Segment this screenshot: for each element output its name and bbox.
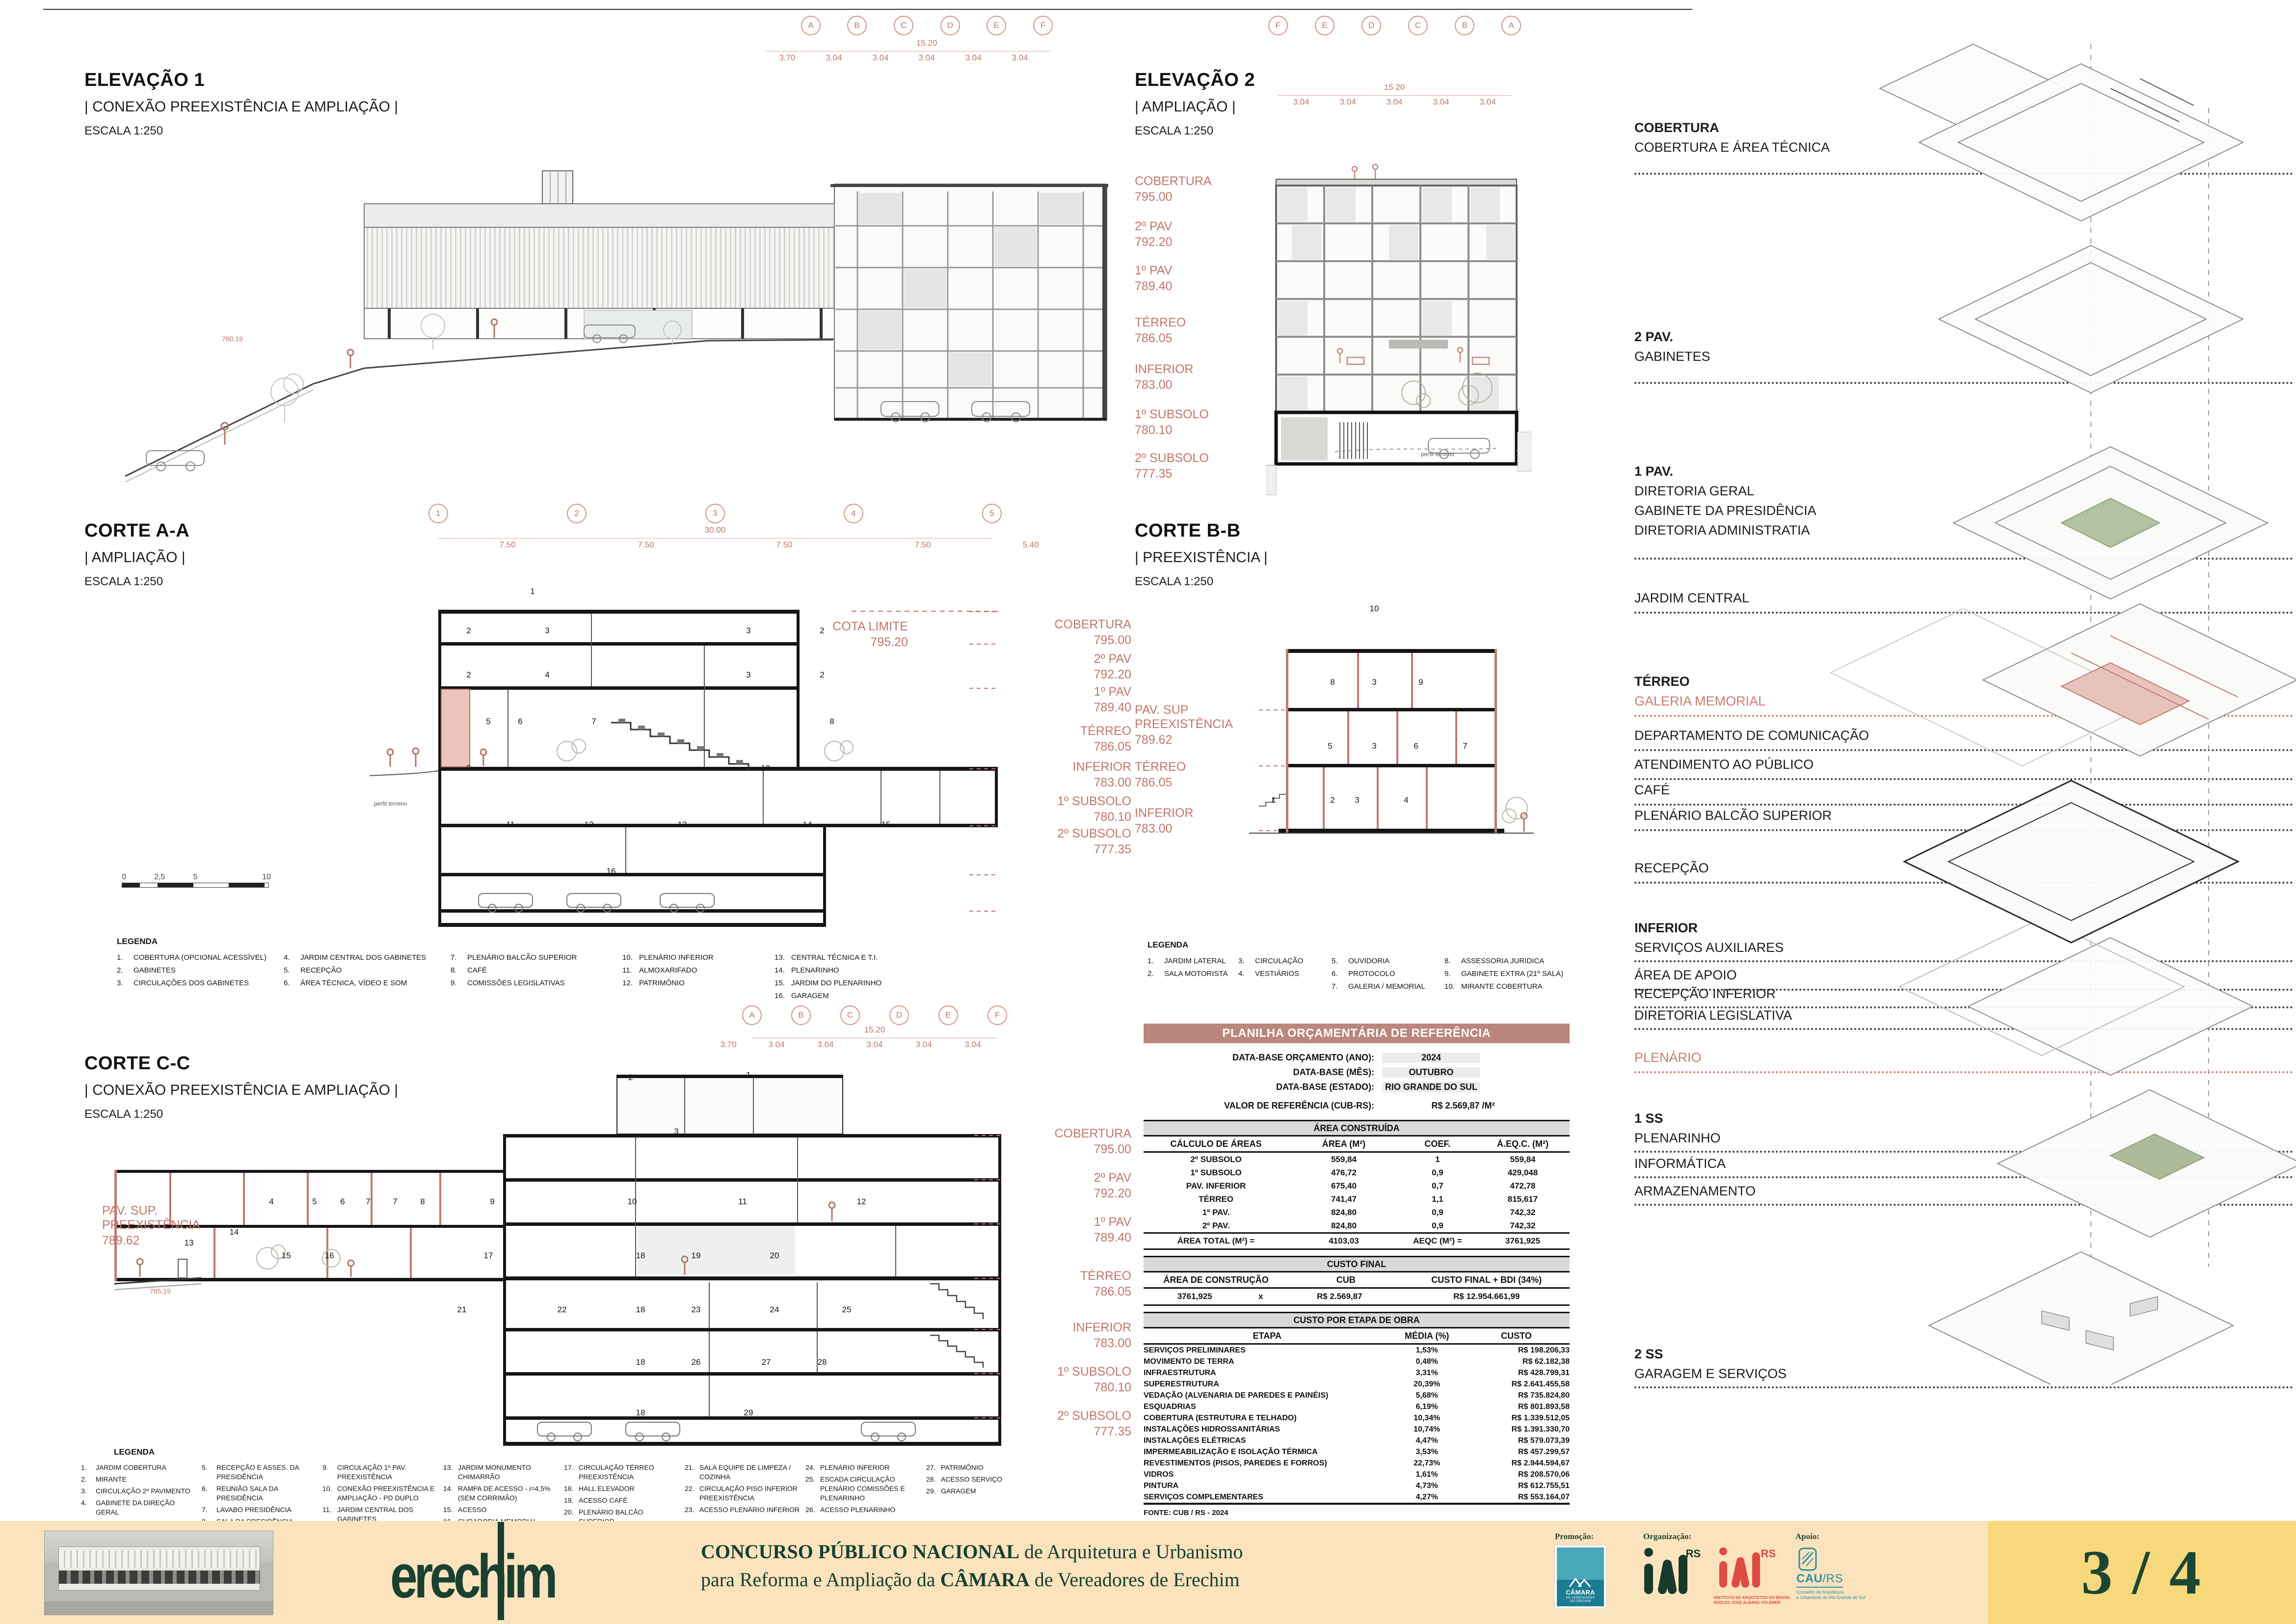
axon-label-plenario-balcao: PLENÁRIO BALCÃO SUPERIOR xyxy=(1634,806,2293,825)
grid-bubble: 2 xyxy=(567,504,587,523)
grid-bubble: D xyxy=(940,16,960,35)
level-label: INFERIOR783.00 xyxy=(1009,1321,1131,1351)
axon-label-2pav: 2 PAV.GABINETES xyxy=(1634,327,2293,366)
grid-bubble: D xyxy=(889,1005,909,1025)
dim: 3.04 xyxy=(1012,53,1028,63)
grid-bubble: E xyxy=(938,1005,958,1025)
dim: 5.40 xyxy=(1022,540,1039,550)
legend-item: 28.ACESSO SERVIÇO xyxy=(926,1475,1047,1484)
room-tag: 2 xyxy=(466,670,471,680)
room-tag: 18 xyxy=(636,1357,645,1367)
dim: 3.04 xyxy=(866,1040,882,1050)
room-tag: 25 xyxy=(842,1305,852,1315)
source-note: FONTE: CUB / RS - 2024 xyxy=(1144,1509,1570,1517)
legend-item: 3.CIRCULAÇÃO 2º PAVIMENTO xyxy=(81,1487,202,1496)
grid-bubble: C xyxy=(894,16,913,35)
area-headers: CÁLCULO DE ÁREASÁREA (M²)COEF.Á.EQ.C. (M… xyxy=(1144,1137,1570,1153)
info-row: DATA-BASE (MÊS):OUTUBRO xyxy=(1144,1065,1570,1080)
legend-item: 2.GABINETES xyxy=(117,965,284,975)
level-label: 2º SUBSOLO777.35 xyxy=(1009,827,1131,857)
grid-bubble: B xyxy=(791,1005,811,1025)
level-label: TÉRREO786.05 xyxy=(1135,316,1186,346)
room-tag: 13 xyxy=(678,820,687,830)
legend-item: 5.RECEPÇÃO xyxy=(284,965,451,975)
axon-label-armazenamento: ARMAZENAMENTO xyxy=(1634,1181,2293,1201)
legend-item: 1.JARDIM LATERAL xyxy=(1148,956,1238,966)
grid-bubble: F xyxy=(1268,16,1288,35)
room-tag: 4 xyxy=(269,1197,273,1207)
axon-label-jardim-central: JARDIM CENTRAL xyxy=(1634,588,2293,608)
room-tag: 22 xyxy=(558,1305,567,1315)
grid-bubble: C xyxy=(840,1005,860,1025)
legend-item: 8.CAFÉ xyxy=(451,965,622,975)
legend-item: 25.ESCADA CIRCULAÇÃO PLENÁRIO COMISSÕES … xyxy=(805,1475,926,1503)
elevation-1-titleblock: ELEVAÇÃO 1 | CONEXÃO PREEXISTÊNCIA E AMP… xyxy=(84,70,398,138)
room-tag: 18 xyxy=(636,1251,645,1261)
legend-item: 18.HALL ELEVADOR xyxy=(564,1484,685,1493)
level-label: 1º SUBSOLO780.10 xyxy=(1009,1365,1131,1395)
area-row: 2º SUBSOLO559,841559,84 xyxy=(1144,1153,1570,1166)
legend-item: 7.PLENÁRIO BALCÃO SUPERIOR xyxy=(451,952,622,963)
room-tag: 4 xyxy=(1404,795,1408,805)
stage-row: PINTURA4,73%R$ 612.755,51 xyxy=(1144,1480,1570,1491)
section-bb-drawing xyxy=(1249,594,1534,879)
section-bb-title: CORTE B-B xyxy=(1135,520,1268,541)
level-label: 2º PAV792.20 xyxy=(1009,1171,1131,1201)
axon-label-inferior: INFERIORSERVIÇOS AUXILIARES xyxy=(1634,918,2293,957)
stage-row: SERVIÇOS PRELIMINARES1,53%R$ 198.206,33 xyxy=(1144,1345,1570,1356)
room-tag: 8 xyxy=(829,717,834,727)
room-tag: 16 xyxy=(325,1251,334,1261)
legend-item: 10.MIRANTE COBERTURA xyxy=(1444,981,1572,992)
elevation-1-title: ELEVAÇÃO 1 xyxy=(84,70,398,91)
legend-item: 10.CONEXÃO PREEXISTÊNCIA E AMPLIAÇÃO - P… xyxy=(322,1484,443,1503)
dim: 3.70 xyxy=(779,53,795,63)
level-label: 1º PAV789.40 xyxy=(1135,264,1172,294)
apoio-label: Apoio: xyxy=(1795,1532,1819,1542)
room-tag: 3 xyxy=(746,626,750,636)
dim: 3.04 xyxy=(964,1040,981,1050)
dim: 7.50 xyxy=(638,540,654,550)
axon-label-diretoria-legislativa: DIRETORIA LEGISLATIVA xyxy=(1634,1005,2293,1025)
footer-band: erechim CONCURSO PÚBLICO NACIONAL de Arq… xyxy=(0,1521,2296,1624)
stage-row: SERVIÇOS COMPLEMENTARES4,27%R$ 553.164,0… xyxy=(1144,1491,1570,1503)
level-label: 2º SUBSOLO777.35 xyxy=(1009,1409,1131,1439)
room-tag: 23 xyxy=(692,1305,701,1315)
room-tag: 28 xyxy=(818,1357,827,1367)
grid-bubble: E xyxy=(1315,16,1335,35)
stage-row: INSTALAÇÕES ELÉTRICAS4,47%R$ 579.073,39 xyxy=(1144,1435,1570,1446)
competition-board-sheet: ELEVAÇÃO 1 | CONEXÃO PREEXISTÊNCIA E AMP… xyxy=(0,0,2296,1624)
legend-item: 13.CENTRAL TÉCNICA E T.I. xyxy=(774,952,951,963)
legend-item: 4.VESTIÁRIOS xyxy=(1238,969,1332,979)
elevation-1-subtitle: | CONEXÃO PREEXISTÊNCIA E AMPLIAÇÃO | xyxy=(84,99,398,115)
room-tag: 17 xyxy=(484,1251,493,1261)
room-tag: 7 xyxy=(591,717,596,727)
dim-total: 15.20 xyxy=(864,1025,885,1035)
graphic-scale-bar: 0 2,5 5 10 xyxy=(122,873,269,888)
erechim-logo: erechim xyxy=(390,1542,555,1612)
stage-row: MOVIMENTO DE TERRA0,48%R$ 62.182,38 xyxy=(1144,1356,1570,1367)
dim: 3.04 xyxy=(1479,97,1495,107)
legend-item: 22.CIRCULAÇÃO PISO INFERIOR PREEXISTÊNCI… xyxy=(685,1484,805,1503)
level-label: TÉRREO786.05 xyxy=(1009,724,1131,754)
final-cost-title: CUSTO FINAL xyxy=(1144,1256,1570,1272)
grid-bubble: 1 xyxy=(428,504,448,523)
legend-item: 24.PLENÁRIO INFERIOR xyxy=(805,1463,926,1472)
elevation-2-subtitle: | AMPLIAÇÃO | xyxy=(1135,99,1255,115)
dim: 7.50 xyxy=(776,540,792,550)
level-label: INFERIOR783.00 xyxy=(1135,362,1193,392)
axon-label-2ss: 2 SSGARAGEM E SERVIÇOS xyxy=(1634,1344,2293,1383)
legend-item: 23.ACESSO PLENÁRIO INFERIOR xyxy=(685,1505,805,1515)
legend-item: 14.PLENARINHO xyxy=(774,965,951,975)
room-tag: 4 xyxy=(545,670,549,680)
final-cost-headers: ÁREA DE CONSTRUÇÃOCUBCUSTO FINAL + BDI (… xyxy=(1144,1272,1570,1289)
legend-item: 16.GARAGEM xyxy=(774,991,951,1001)
room-tag: 13 xyxy=(185,1238,194,1248)
terrain-profile-label: perfil terreno xyxy=(1421,451,1454,458)
stage-row: VEDAÇÃO (ALVENARIA DE PAREDES E PAINÉIS)… xyxy=(1144,1390,1570,1401)
stage-row: REVESTIMENTOS (PISOS, PAREDES E FORROS)2… xyxy=(1144,1458,1570,1469)
level-label: COBERTURA795.00 xyxy=(1135,174,1212,204)
room-tag: 14 xyxy=(803,820,812,830)
area-row: 2º PAV.824,800,9742,32 xyxy=(1144,1219,1570,1232)
level-label: COBERTURA795.00 xyxy=(1009,1127,1131,1157)
level-label: 2º PAV792.20 xyxy=(1135,219,1172,249)
room-tag: 3 xyxy=(746,670,750,680)
section-aa-scale: ESCALA 1:250 xyxy=(84,575,189,589)
room-tag: 9 xyxy=(1418,677,1423,687)
stage-row: ESQUADRIAS6,19%R$ 801.893,58 xyxy=(1144,1401,1570,1412)
room-tag: 8 xyxy=(1330,677,1335,687)
room-tag: 3 xyxy=(674,1127,678,1137)
grid-bubble: A xyxy=(742,1005,762,1025)
info-row: DATA-BASE ORÇAMENTO (ANO):2024 xyxy=(1144,1050,1570,1065)
stage-row: INFRAESTRUTURA3,31%R$ 428.799,31 xyxy=(1144,1367,1570,1379)
room-tag: 6 xyxy=(1414,741,1418,751)
legend-item: 6.REUNIÃO SALA DA PRESIDÊNCIA xyxy=(202,1484,322,1503)
stage-cost-headers: ETAPAMÉDIA (%)CUSTO xyxy=(1144,1328,1570,1345)
axon-label-cafe: CAFÉ xyxy=(1634,780,2293,800)
grid-bubble: D xyxy=(1362,16,1381,35)
legend-item: 29.GARAGEM xyxy=(926,1487,1047,1496)
legend-item: 5.OUVIDORIA xyxy=(1332,956,1444,966)
legend-item: 27.PATRIMÔNIO xyxy=(926,1463,1047,1472)
dim: 3.04 xyxy=(1433,97,1449,107)
legend-item: 4.GABINETE DA DIREÇÃO GERAL xyxy=(81,1498,202,1517)
level-label: INFERIOR783.00 xyxy=(1135,806,1193,836)
grid-bubble: F xyxy=(988,1005,1007,1025)
existing-building-photo xyxy=(44,1531,273,1615)
dim: 3.70 xyxy=(720,1040,736,1050)
competition-title: CONCURSO PÚBLICO NACIONAL de Arquitetura… xyxy=(701,1538,1243,1594)
area-row: 1º SUBSOLO476,720,9429,048 xyxy=(1144,1166,1570,1179)
level-label: TÉRREO786.05 xyxy=(1009,1269,1131,1299)
dim-total: 15.20 xyxy=(916,38,937,48)
room-tag: 3 xyxy=(1372,741,1376,751)
elevation-2-titleblock: ELEVAÇÃO 2 | AMPLIAÇÃO | ESCALA 1:250 xyxy=(1135,70,1255,138)
room-tag: 12 xyxy=(857,1197,866,1207)
room-tag: 26 xyxy=(692,1357,701,1367)
room-tag: 18 xyxy=(636,1408,645,1418)
axon-label-terreo: TÉRREOGALERIA MEMORIAL xyxy=(1634,672,2293,711)
level-label: 1º PAV789.40 xyxy=(1009,1215,1131,1245)
legend-item: 21.SALA EQUIPE DE LIMPEZA / COZINHA xyxy=(685,1463,805,1482)
leader-dots xyxy=(1634,1386,2293,1388)
dim: 3.04 xyxy=(817,1040,833,1050)
dim: 3.04 xyxy=(1339,97,1356,107)
room-tag: 3 xyxy=(1372,677,1376,687)
legend-item: 9.COMISSÕES LEGISLATIVAS xyxy=(451,978,622,988)
room-tag: 10 xyxy=(1370,604,1379,614)
grid-bubble: C xyxy=(1408,16,1428,35)
room-tag: 6 xyxy=(518,717,522,727)
room-tag: 21 xyxy=(457,1305,467,1315)
dim: 3.04 xyxy=(872,53,888,63)
elevation-1-scale: ESCALA 1:250 xyxy=(84,124,398,138)
legend-item: 1.COBERTURA (OPCIONAL ACESSÍVEL) xyxy=(117,952,284,963)
room-tag: 9 xyxy=(466,763,471,773)
page-number-badge: 3 / 4 xyxy=(1988,1521,2296,1624)
room-tag: 18 xyxy=(636,1305,645,1315)
room-tag: 3 xyxy=(1355,795,1359,805)
dim: 3.04 xyxy=(1386,97,1402,107)
legend-item: 15.JARDIM DO PLENARINHO xyxy=(774,978,951,988)
section-bb-subtitle: | PREEXISTÊNCIA | xyxy=(1135,549,1268,566)
grid-bubble: B xyxy=(847,16,867,35)
dim: 3.04 xyxy=(1293,97,1309,107)
room-tag: 11 xyxy=(738,1197,747,1207)
budget-table: PLANILHA ORÇAMENTÁRIA DE REFERÊNCIA DATA… xyxy=(1144,1024,1570,1517)
legend-item: 12.PATRIMÔNIO xyxy=(622,978,774,988)
room-tag: 10 xyxy=(761,763,771,773)
room-tag: 14 xyxy=(230,1227,239,1237)
dim-total: 15.20 xyxy=(1384,82,1405,92)
final-cost-row: 3761,925xR$ 2.569,87R$ 12.954.661,99 xyxy=(1144,1289,1570,1306)
section-bb-legend: LEGENDA 1.JARDIM LATERAL2.SALA MOTORISTA… xyxy=(1148,940,1572,994)
organizacao-label: Organização: xyxy=(1643,1532,1691,1542)
room-tag: 24 xyxy=(770,1305,779,1315)
dim-line xyxy=(1278,95,1511,96)
room-tag: 2 xyxy=(628,1073,633,1083)
level-label: 2º SUBSOLO777.35 xyxy=(1135,451,1209,481)
axon-label-recepcao-inferior: RECEPÇÃO INFERIOR xyxy=(1634,984,2293,1003)
room-tag: 11 xyxy=(506,820,515,830)
area-total-row: ÁREA TOTAL (M²) =4103,03AEQC (M²) =3761,… xyxy=(1144,1232,1570,1250)
room-tag: 16 xyxy=(607,866,616,876)
dim: 3.04 xyxy=(965,53,981,63)
legend-item: 26.ACESSO PLENARINHO xyxy=(805,1505,926,1515)
grid-bubble: 3 xyxy=(705,504,725,523)
elevation-2-scale: ESCALA 1:250 xyxy=(1135,124,1255,138)
axon-label-1pav: 1 PAV.DIRETORIA GERALGABINETE DA PRESIDÊ… xyxy=(1634,461,2293,540)
room-tag: 20 xyxy=(770,1251,779,1261)
room-tag: 7 xyxy=(366,1197,370,1207)
dim: 3.04 xyxy=(918,53,934,63)
legend-item: 7.LAVABO PRESIDÊNCIA xyxy=(202,1505,322,1515)
room-tag: 10 xyxy=(628,1197,637,1207)
section-aa-titleblock: CORTE A-A | AMPLIAÇÃO | ESCALA 1:250 xyxy=(84,520,189,589)
dim: 3.04 xyxy=(915,1040,932,1050)
legend-item: 5.RECEPÇÃO E ASSES. DA PRESIDÊNCIA xyxy=(202,1463,322,1482)
room-tag: 5 xyxy=(312,1197,317,1207)
stage-row: COBERTURA (ESTRUTURA E TELHADO)10,34%R$ … xyxy=(1144,1412,1570,1424)
info-row: DATA-BASE (ESTADO):RIO GRANDE DO SUL xyxy=(1144,1080,1570,1094)
level-label: PAV. SUPPREEXISTÊNCIA789.62 xyxy=(1135,703,1233,747)
legend-item: 3.CIRCULAÇÕES DOS GABINETES xyxy=(117,978,284,988)
dim-line xyxy=(438,538,992,539)
legend-item: 6.PROTOCOLO xyxy=(1332,969,1444,979)
room-tag: 2 xyxy=(820,670,824,680)
legend-item: 6.ÁREA TÉCNICA, VÍDEO E SOM xyxy=(284,978,451,988)
section-cc-drawing xyxy=(96,1053,1004,1446)
section-bb-scale: ESCALA 1:250 xyxy=(1135,575,1268,589)
dim: 3.04 xyxy=(768,1040,784,1050)
grid-bubble: 5 xyxy=(982,504,1002,523)
room-tag: 5 xyxy=(486,717,490,727)
budget-table-title: PLANILHA ORÇAMENTÁRIA DE REFERÊNCIA xyxy=(1144,1024,1570,1043)
elevation-2-title: ELEVAÇÃO 2 xyxy=(1135,70,1255,91)
dim: 7.50 xyxy=(914,540,931,550)
level-label: 1º SUBSOLO780.10 xyxy=(1009,794,1131,824)
axon-label-informatica: INFORMÁTICA xyxy=(1634,1154,2293,1173)
section-bb-titleblock: CORTE B-B | PREEXISTÊNCIA | ESCALA 1:250 xyxy=(1135,520,1268,589)
legend-item: 13.JARDIM MONUMENTO CHIMARRÃO xyxy=(443,1463,564,1482)
room-tag: 15 xyxy=(881,820,891,830)
reference-value-row: VALOR DE REFERÊNCIA (CUB-RS):R$ 2.569,87… xyxy=(1144,1097,1570,1114)
legend-item: 14.RAMPA DE ACESSO - i=4,5% (SEM CORRIMÃ… xyxy=(443,1484,564,1503)
axon-label-cobertura: COBERTURACOBERTURA E ÁREA TÉCNICA xyxy=(1634,118,2293,157)
elevation-2-drawing xyxy=(1266,157,1531,501)
level-label: COBERTURA795.00 xyxy=(1009,618,1131,648)
room-tag: 1 xyxy=(530,587,534,596)
legend-item: 19.ACESSO CAFÉ xyxy=(564,1496,685,1505)
room-tag: 7 xyxy=(1463,741,1467,751)
legend-item: 17.CIRCULAÇÃO TÉRREO PREEXISTÊNCIA xyxy=(564,1463,685,1482)
room-tag: 19 xyxy=(692,1251,701,1261)
room-tag: 8 xyxy=(420,1197,425,1207)
dim: 3.04 xyxy=(826,53,842,63)
section-aa-subtitle: | AMPLIAÇÃO | xyxy=(84,549,189,566)
room-tag: 15 xyxy=(282,1251,291,1261)
room-tag: 1 xyxy=(1271,795,1276,805)
axon-label-area-apoio: ÁREA DE APOIO xyxy=(1634,965,2293,985)
room-tag: 29 xyxy=(744,1408,753,1418)
axon-label-comunicacao: DEPARTAMENTO DE COMUNICAÇÃO xyxy=(1634,726,2293,745)
dim-line xyxy=(766,51,1050,52)
axon-label-recepcao: RECEPÇÃO xyxy=(1634,858,2293,878)
sheet-top-rule xyxy=(43,9,1692,10)
dim: 7.50 xyxy=(499,540,515,550)
grid-bubble: A xyxy=(1501,16,1521,35)
cota-limite-label: COTA LIMITE795.20 xyxy=(810,620,908,650)
terrain-profile-label: perfil terreno xyxy=(374,800,407,807)
legend-item: 7.GALERIA / MEMORIAL xyxy=(1332,981,1444,992)
axon-label-1ss: 1 SSPLENARINHO xyxy=(1634,1109,2293,1148)
axon-label-plenario: PLENÁRIO xyxy=(1634,1048,2293,1067)
grid-bubble: 4 xyxy=(844,504,863,523)
legend-item: 1.JARDIM COBERTURA xyxy=(81,1463,202,1472)
grid-bubble: E xyxy=(987,16,1006,35)
legend-item: 11.ALMOXARIFADO xyxy=(622,965,774,975)
spot-elevation: 785.19 xyxy=(150,1287,171,1295)
grid-bubble: B xyxy=(1455,16,1474,35)
level-label: 2º PAV792.20 xyxy=(1009,652,1131,682)
legend-item: 3.CIRCULAÇÃO xyxy=(1238,956,1332,966)
section-aa-title: CORTE A-A xyxy=(84,520,189,541)
legend-item: 2.MIRANTE xyxy=(81,1475,202,1484)
legend-item: 15.ACESSO xyxy=(443,1505,564,1515)
room-tag: 6 xyxy=(340,1197,345,1207)
room-tag: 5 xyxy=(1328,741,1332,751)
stage-row: IMPERMEABILIZAÇÃO E ISOLAÇÃO TÉRMICA3,53… xyxy=(1144,1446,1570,1458)
stage-cost-title: CUSTO POR ETAPA DE OBRA xyxy=(1144,1312,1570,1328)
dim-line xyxy=(752,1038,997,1038)
iab-rs-logo-green: RS xyxy=(1642,1544,1701,1606)
room-tag: 3 xyxy=(545,626,549,636)
legend-item: 4.JARDIM CENTRAL DOS GABINETES xyxy=(284,952,451,963)
area-row: 1º PAV.824,800,9742,32 xyxy=(1144,1206,1570,1219)
dim-total: 30.00 xyxy=(705,525,726,535)
room-tag: 12 xyxy=(585,820,594,830)
room-tag: 1 xyxy=(746,1070,750,1080)
room-tag: 7 xyxy=(393,1197,397,1207)
erechim-logo-stem xyxy=(498,1522,504,1620)
area-section-title: ÁREA CONSTRUÍDA xyxy=(1144,1120,1570,1137)
grid-bubble: A xyxy=(801,16,821,35)
elevation-1-drawing xyxy=(123,157,1109,506)
room-tag: 9 xyxy=(490,1197,494,1207)
stage-row: SUPERESTRUTURA20,39%R$ 2.641.455,58 xyxy=(1144,1379,1570,1390)
cau-rs-logo: CAU/RS Conselho de Arquiteturae Urbanism… xyxy=(1796,1546,1890,1600)
stage-row: VIDROS1,61%R$ 208.570,06 xyxy=(1144,1469,1570,1480)
camara-erechim-logo: CÂMARA DE VEREADORES DE ERECHIM xyxy=(1555,1545,1606,1608)
axon-label-atendimento: ATENDIMENTO AO PÚBLICO xyxy=(1634,755,2293,774)
stage-row: INSTALAÇÕES HIDROSSANITÁRIAS10,74%R$ 1.3… xyxy=(1144,1424,1570,1435)
legend-item: 9.CIRCULAÇÃO 1º PAV. PREEXISTÊNCIA xyxy=(322,1463,443,1482)
legend-item: 2.SALA MOTORISTA xyxy=(1148,969,1238,979)
room-tag: 27 xyxy=(762,1357,771,1367)
level-label: 1º PAV789.40 xyxy=(1009,685,1131,715)
legend-item: 8.ASSESSORIA JURIDICA xyxy=(1444,956,1572,966)
area-row: PAV. INFERIOR675,400,7472,78 xyxy=(1144,1179,1570,1192)
promocao-label: Promoção: xyxy=(1555,1532,1594,1542)
legend-item: 9.GABINETE EXTRA (21º SALA) xyxy=(1444,969,1572,979)
legend-item: 10.PLENÁRIO INFERIOR xyxy=(622,952,774,963)
room-tag: 2 xyxy=(466,626,471,636)
level-label: INFERIOR783.00 xyxy=(1009,760,1131,790)
area-row: TÉRREO741,471,1815,617 xyxy=(1144,1192,1570,1206)
level-label: 1º SUBSOLO780.10 xyxy=(1135,407,1209,437)
level-label: TÉRREO786.05 xyxy=(1135,760,1186,790)
room-tag: 2 xyxy=(1330,795,1335,805)
iab-caption: INSTITUTO DE ARQUITETOS DO BRASILNÚCLEO … xyxy=(1714,1596,1790,1605)
grid-bubble: F xyxy=(1033,16,1053,35)
section-aa-legend: LEGENDA 1.COBERTURA (OPCIONAL ACESSÍVEL)… xyxy=(117,937,951,1003)
spot-elevation: 780.19 xyxy=(222,335,243,343)
